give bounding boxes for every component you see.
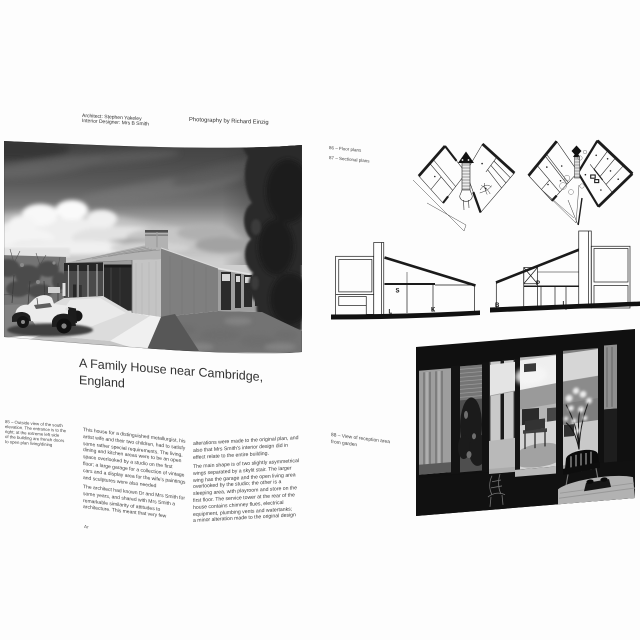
svg-text:L: L (389, 310, 393, 316)
svg-text:L: L (563, 302, 567, 308)
svg-text:K: K (431, 308, 436, 314)
svg-text:B: B (495, 303, 500, 309)
svg-text:P: P (536, 281, 540, 287)
svg-text:S: S (396, 289, 400, 295)
